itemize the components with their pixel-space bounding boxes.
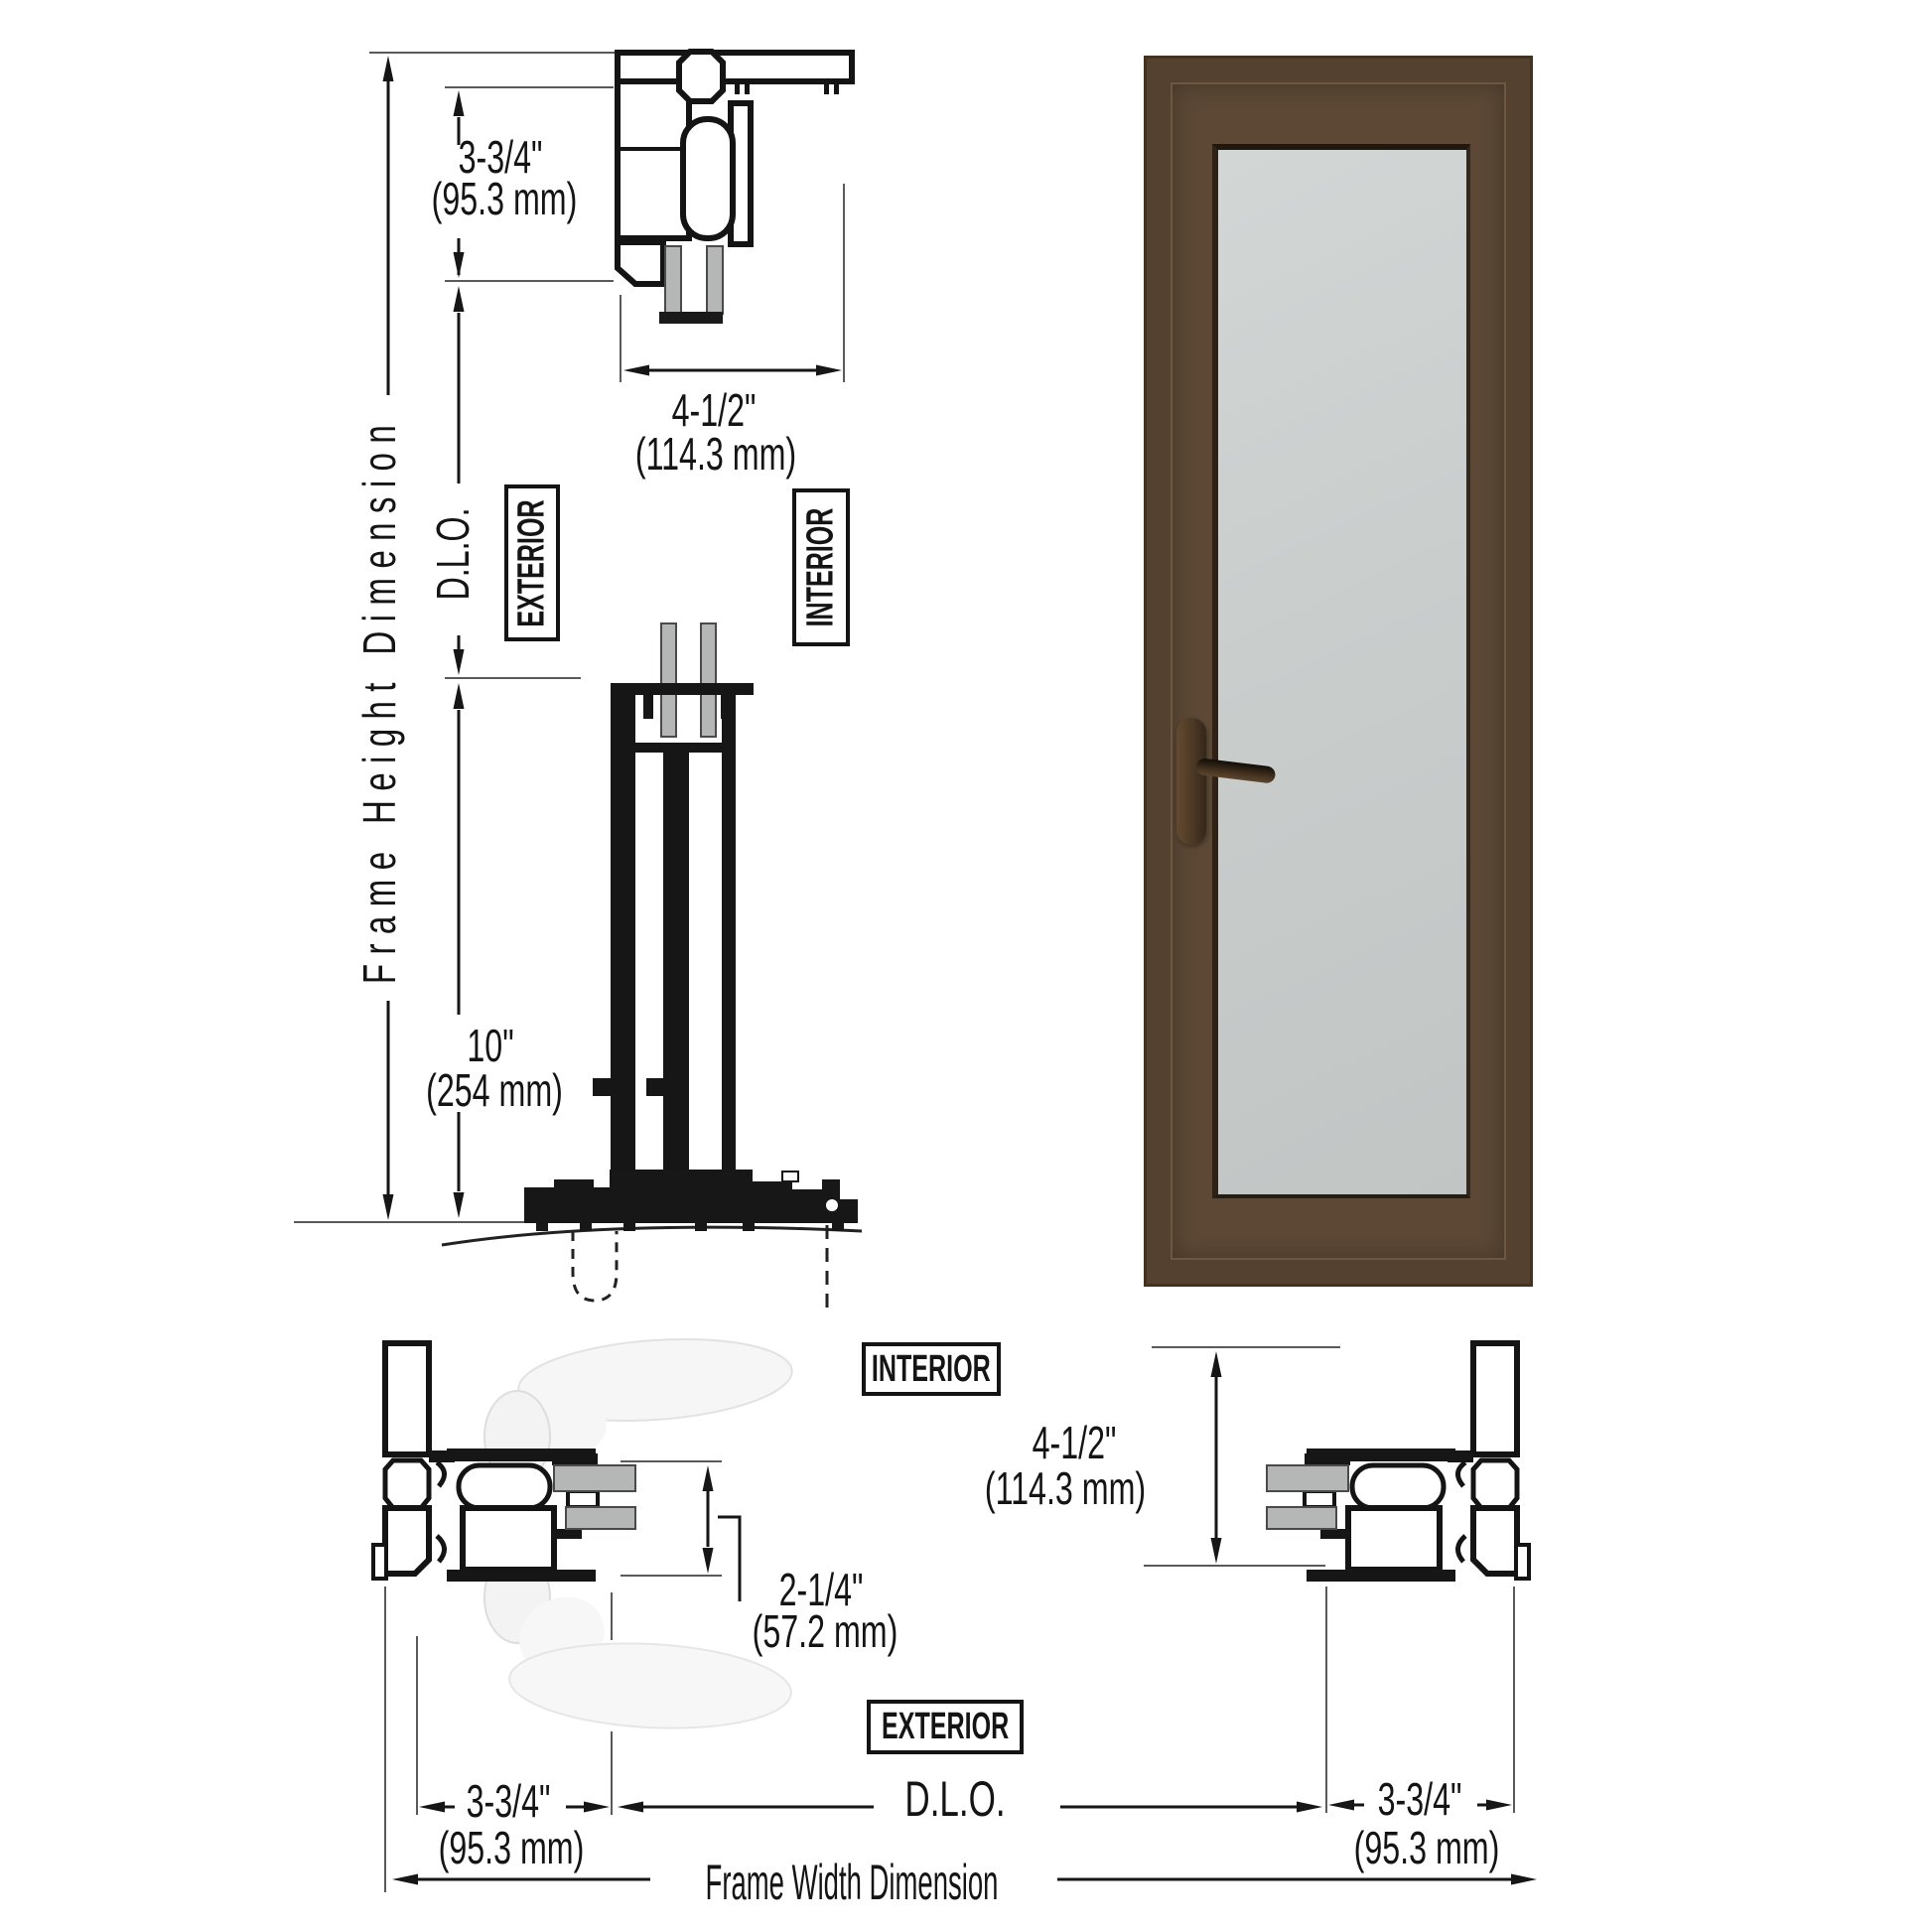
door-series-technical-drawing: Frame Height Dimension D.L.O. EXTERIOR I…: [0, 0, 1932, 1932]
interior-zone-box-top: INTERIOR: [792, 488, 850, 646]
dlo-horizontal-label: D.L.O.: [904, 1770, 1005, 1828]
interior-zone-label-top: INTERIOR: [800, 508, 843, 627]
right-jamb-inches: 3-3/4": [1378, 1772, 1462, 1826]
right-jamb-metric: (95.3 mm): [1354, 1821, 1500, 1874]
hinge-jamb-section-detail: [1267, 1343, 1529, 1582]
exterior-zone-label-top: EXTERIOR: [511, 499, 554, 626]
frame-height-dimension-label: Frame Height Dimension: [352, 416, 406, 984]
exterior-zone-label-bottom: EXTERIOR: [882, 1706, 1009, 1748]
dlo-vertical-label: D.L.O.: [426, 507, 480, 600]
frame-depth-top-metric: (114.3 mm): [635, 427, 796, 481]
door-glass-panel: [1212, 144, 1470, 1198]
door-handle-escutcheon: [1176, 718, 1206, 845]
threshold-profile: [524, 1170, 858, 1223]
exterior-zone-box-bottom: EXTERIOR: [867, 1700, 1024, 1754]
left-jamb-inches: 3-3/4": [467, 1774, 551, 1828]
left-jamb-metric: (95.3 mm): [439, 1821, 585, 1874]
interior-zone-box-bottom: INTERIOR: [862, 1342, 1001, 1396]
door-photo: [1144, 56, 1533, 1287]
interior-zone-label-bottom: INTERIOR: [872, 1348, 991, 1391]
frame-width-dimension-label: Frame Width Dimension: [706, 1854, 999, 1911]
drawing-linework: [0, 0, 1932, 1932]
head-height-metric: (95.3 mm): [432, 172, 578, 225]
exterior-zone-box-top: EXTERIOR: [504, 484, 560, 641]
glass-edge-top: [665, 246, 723, 314]
anchor-dashed-outline: [573, 1231, 617, 1301]
bottom-rail-metric: (254 mm): [426, 1063, 563, 1117]
frame-depth-right-metric: (114.3 mm): [985, 1461, 1146, 1515]
finish-floor-line: [442, 1227, 862, 1245]
glass-edge-bottom: [661, 623, 716, 737]
bottom-rail-section-detail: [524, 623, 858, 1312]
head-section-detail: [618, 52, 852, 324]
lock-stile-metric: (57.2 mm): [753, 1604, 898, 1658]
